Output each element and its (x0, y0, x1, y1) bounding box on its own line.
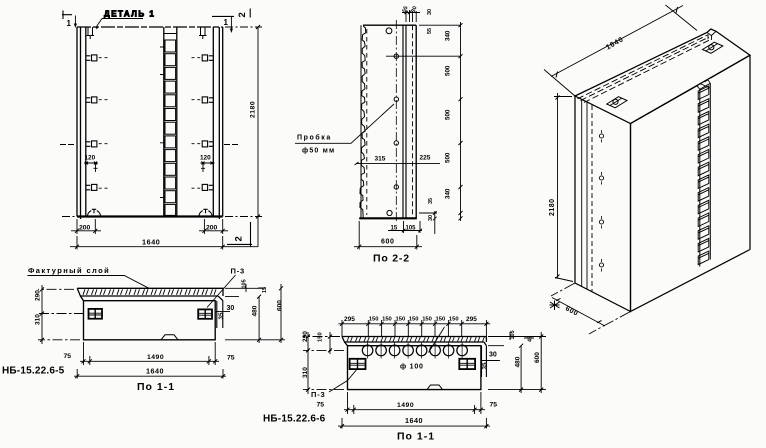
svg-text:120: 120 (85, 155, 96, 162)
svg-text:2: 2 (237, 12, 248, 17)
svg-text:35: 35 (481, 362, 488, 370)
svg-text:295: 295 (344, 316, 355, 323)
svg-text:480: 480 (252, 305, 259, 316)
svg-text:15: 15 (391, 226, 398, 232)
svg-text:35: 35 (218, 312, 225, 320)
svg-text:500: 500 (445, 65, 452, 76)
svg-text:75: 75 (64, 353, 72, 360)
svg-text:1: 1 (67, 19, 72, 28)
svg-text:55: 55 (427, 28, 433, 34)
svg-text:150: 150 (396, 316, 406, 322)
svg-text:1640: 1640 (142, 238, 160, 247)
svg-text:П-3: П-3 (231, 267, 245, 276)
svg-text:310: 310 (302, 367, 309, 378)
svg-text:35: 35 (428, 198, 434, 204)
svg-text:295: 295 (466, 316, 477, 323)
svg-text:315: 315 (375, 156, 386, 163)
svg-text:45: 45 (528, 336, 534, 342)
svg-text:105: 105 (242, 279, 248, 288)
svg-text:200: 200 (79, 224, 91, 231)
svg-text:120: 120 (200, 155, 211, 162)
svg-text:30: 30 (489, 352, 497, 359)
svg-text:Фактурный слой: Фактурный слой (28, 266, 110, 275)
svg-text:75: 75 (490, 402, 498, 409)
svg-text:75: 75 (317, 402, 325, 409)
svg-text:30: 30 (427, 9, 433, 15)
svg-text:600: 600 (534, 352, 541, 363)
svg-text:1490: 1490 (397, 402, 414, 409)
svg-text:225: 225 (420, 155, 431, 162)
svg-text:1: 1 (224, 18, 229, 27)
svg-text:500: 500 (445, 152, 452, 163)
svg-text:Пробка: Пробка (297, 134, 332, 142)
svg-text:600: 600 (381, 239, 394, 246)
svg-text:По 1-1: По 1-1 (397, 431, 435, 443)
svg-text:75: 75 (227, 355, 235, 362)
svg-text:600: 600 (276, 300, 283, 311)
svg-text:По 1-1: По 1-1 (137, 381, 175, 393)
svg-text:П-3: П-3 (311, 390, 325, 399)
svg-text:150: 150 (369, 316, 379, 322)
svg-text:30: 30 (227, 305, 235, 312)
svg-text:2: 2 (234, 236, 245, 241)
svg-text:1640: 1640 (146, 367, 164, 376)
svg-text:150: 150 (318, 332, 324, 342)
svg-text:310: 310 (34, 314, 41, 325)
svg-text:150: 150 (449, 316, 459, 322)
svg-text:500: 500 (445, 109, 452, 120)
svg-text:НБ-15.22.6-6: НБ-15.22.6-6 (263, 414, 326, 425)
svg-text:340: 340 (445, 30, 452, 41)
svg-text:290: 290 (34, 290, 41, 301)
svg-text:480: 480 (514, 356, 521, 367)
svg-text:НБ-15.22.6-5: НБ-15.22.6-5 (2, 366, 65, 377)
svg-text:340: 340 (445, 188, 452, 199)
svg-text:ф50 мм: ф50 мм (302, 148, 335, 155)
svg-text:1490: 1490 (147, 354, 164, 361)
svg-text:2180: 2180 (250, 101, 257, 118)
svg-text:1640: 1640 (405, 416, 423, 425)
svg-text:290: 290 (302, 331, 309, 342)
svg-text:105: 105 (406, 226, 417, 232)
svg-text:2180: 2180 (549, 198, 556, 216)
svg-text:ф 100: ф 100 (400, 364, 424, 371)
svg-text:15: 15 (262, 287, 268, 293)
svg-text:150: 150 (422, 316, 432, 322)
svg-text:150: 150 (382, 316, 392, 322)
svg-text:105: 105 (510, 330, 516, 339)
svg-text:ДЕТАЛЬ 1: ДЕТАЛЬ 1 (104, 10, 155, 19)
svg-text:200: 200 (206, 224, 218, 231)
svg-text:По 2-2: По 2-2 (373, 253, 410, 265)
svg-text:150: 150 (436, 316, 446, 322)
svg-text:150: 150 (409, 316, 419, 322)
